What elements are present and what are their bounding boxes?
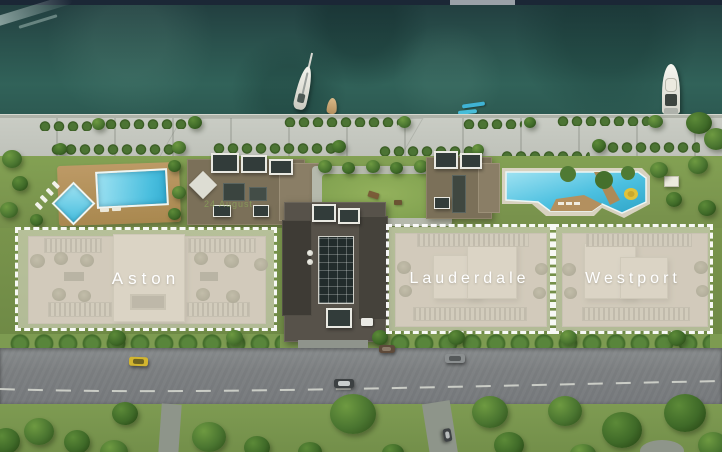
tree-icon bbox=[648, 115, 663, 128]
lap-pool bbox=[95, 168, 169, 209]
yellow-car-icon bbox=[129, 357, 148, 367]
region-label-aston: Aston bbox=[112, 269, 180, 289]
tree-icon bbox=[666, 192, 682, 207]
tree-icon bbox=[650, 162, 668, 178]
region-hotspot-westport[interactable]: Westport bbox=[553, 224, 713, 334]
building-wing bbox=[478, 163, 500, 213]
yacht-icon bbox=[662, 64, 680, 118]
roof-trellis bbox=[338, 208, 360, 224]
tree-icon bbox=[560, 330, 577, 345]
hedge-planter bbox=[283, 117, 399, 127]
tree-icon bbox=[192, 422, 226, 452]
grey-sedan-icon bbox=[445, 354, 465, 363]
roof-trellis bbox=[434, 151, 458, 169]
tree-icon bbox=[64, 430, 90, 452]
roof-trellis bbox=[434, 197, 450, 209]
tree-icon bbox=[188, 116, 202, 129]
satellite-dish-icon bbox=[307, 259, 313, 265]
tree-icon bbox=[342, 162, 355, 174]
tree-icon bbox=[698, 200, 716, 216]
lounger-icon bbox=[566, 202, 572, 205]
roof-trellis bbox=[269, 159, 293, 175]
tree-icon bbox=[621, 166, 635, 180]
tree-icon bbox=[318, 160, 332, 173]
tree-icon bbox=[494, 432, 524, 452]
roof-trellis bbox=[312, 204, 336, 222]
tree-icon bbox=[2, 150, 22, 168]
building-wing bbox=[282, 220, 312, 316]
region-label-lauderdale: Lauderdale bbox=[409, 270, 529, 288]
tree-icon bbox=[30, 214, 43, 226]
tree-icon bbox=[0, 202, 18, 218]
yacht-cockpit bbox=[665, 94, 677, 106]
tree-icon bbox=[688, 156, 708, 174]
roof-trellis bbox=[326, 308, 352, 328]
right-pool-complex bbox=[498, 160, 658, 228]
tree-icon bbox=[668, 330, 686, 346]
tree-icon bbox=[664, 394, 706, 432]
dark-sedan-icon bbox=[334, 379, 354, 388]
region-hotspot-lauderdale[interactable]: Lauderdale bbox=[386, 224, 553, 334]
watermark-text: 24 August bbox=[204, 199, 253, 209]
hedge-planter bbox=[462, 119, 522, 129]
tree-icon bbox=[112, 402, 138, 425]
cabana bbox=[664, 176, 679, 187]
region-hotspot-aston[interactable]: Aston bbox=[15, 227, 277, 331]
tree-icon bbox=[12, 176, 28, 191]
white-van-icon bbox=[361, 318, 373, 326]
courtyard-glass bbox=[452, 175, 466, 213]
tree-icon bbox=[366, 160, 380, 173]
tree-icon bbox=[548, 396, 582, 426]
hedge-planter bbox=[104, 119, 188, 129]
glass-atrium bbox=[318, 236, 354, 304]
tree-icon bbox=[332, 140, 346, 153]
water bbox=[0, 5, 722, 118]
tree-icon bbox=[330, 394, 376, 434]
roof-trellis bbox=[241, 155, 267, 173]
tree-icon bbox=[602, 412, 642, 448]
hedge-planter bbox=[38, 121, 92, 131]
tree-icon bbox=[448, 330, 465, 345]
lounger-icon bbox=[112, 207, 121, 211]
tree-icon bbox=[24, 418, 54, 445]
roof-trellis bbox=[253, 205, 269, 217]
tree-icon bbox=[560, 166, 576, 182]
footpath bbox=[158, 403, 181, 452]
middle-building bbox=[282, 202, 388, 350]
tree-icon bbox=[168, 208, 181, 220]
hedge-planter bbox=[592, 142, 700, 154]
tree-icon bbox=[244, 436, 270, 452]
tree-icon bbox=[168, 160, 181, 172]
satellite-dish-icon bbox=[307, 250, 313, 256]
lounger-icon bbox=[100, 208, 109, 212]
roof-trellis bbox=[460, 153, 482, 169]
hedge-planter bbox=[556, 116, 650, 126]
lounger-icon bbox=[558, 202, 564, 205]
pool-float-yellow-inner bbox=[628, 191, 635, 197]
lounger-icon bbox=[40, 195, 48, 203]
tree-icon bbox=[595, 171, 613, 189]
tree-icon bbox=[390, 162, 403, 174]
yacht-cabin bbox=[665, 78, 677, 92]
tree-icon bbox=[592, 139, 606, 152]
tree-icon bbox=[698, 432, 722, 452]
tree-icon bbox=[472, 396, 508, 428]
roof-trellis bbox=[211, 153, 239, 173]
site-plan-rendering: 24 August Aston bbox=[0, 0, 722, 452]
tree-icon bbox=[704, 128, 722, 150]
lounger-icon bbox=[46, 188, 54, 196]
lounger-icon bbox=[574, 202, 580, 205]
brown-car-icon bbox=[379, 345, 395, 353]
tree-icon bbox=[92, 118, 105, 130]
lawn-furniture bbox=[394, 200, 402, 205]
building-wing bbox=[358, 216, 388, 320]
tree-icon bbox=[226, 330, 243, 345]
tree-icon bbox=[398, 116, 411, 128]
region-label-westport: Westport bbox=[585, 270, 681, 288]
tree-icon bbox=[524, 117, 536, 128]
tree-icon bbox=[108, 330, 126, 346]
lounger-icon bbox=[35, 202, 43, 210]
waterfront-building-right bbox=[426, 151, 502, 223]
